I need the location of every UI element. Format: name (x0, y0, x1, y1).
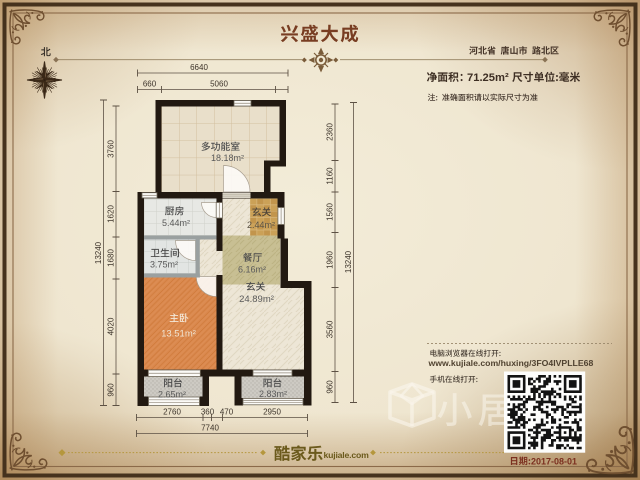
svg-text:1560: 1560 (326, 203, 335, 221)
svg-text:5.44m²: 5.44m² (162, 218, 190, 228)
svg-text:13240: 13240 (344, 250, 353, 273)
svg-text:2.83m²: 2.83m² (259, 389, 287, 399)
svg-text:2360: 2360 (326, 123, 335, 141)
svg-text:5060: 5060 (210, 80, 228, 89)
svg-text:1680: 1680 (107, 249, 116, 267)
svg-text:360: 360 (201, 408, 215, 417)
svg-text:2.65m²: 2.65m² (158, 390, 186, 400)
svg-text:71.25m²: 71.25m² (467, 72, 509, 84)
svg-text:6.16m²: 6.16m² (238, 265, 266, 275)
svg-text:6640: 6640 (190, 63, 208, 72)
svg-text:3560: 3560 (326, 320, 335, 338)
svg-text:2.44m²: 2.44m² (247, 220, 275, 230)
svg-text:13240: 13240 (94, 241, 103, 264)
svg-text:3760: 3760 (107, 140, 116, 158)
svg-text:3.75m²: 3.75m² (150, 260, 178, 270)
svg-text:18.18m²: 18.18m² (211, 153, 244, 163)
svg-text:660: 660 (143, 80, 157, 89)
svg-text:1160: 1160 (326, 167, 335, 185)
svg-text:1620: 1620 (107, 205, 116, 223)
svg-text:960: 960 (326, 380, 335, 394)
svg-text:4020: 4020 (107, 317, 116, 335)
svg-text:2760: 2760 (163, 408, 181, 417)
svg-text:2017-08-01: 2017-08-01 (531, 456, 577, 466)
svg-text:13.51m²: 13.51m² (161, 329, 196, 340)
svg-text:7740: 7740 (201, 424, 219, 433)
svg-text:1960: 1960 (326, 251, 335, 269)
svg-text:www.kujiale.com/huxing/3FO4IVP: www.kujiale.com/huxing/3FO4IVPLLE68 (428, 358, 594, 368)
svg-text:2950: 2950 (263, 408, 281, 417)
svg-text:24.89m²: 24.89m² (239, 294, 274, 305)
svg-text:470: 470 (220, 408, 234, 417)
svg-text:kujiale.com: kujiale.com (324, 450, 370, 460)
svg-text:960: 960 (107, 383, 116, 397)
